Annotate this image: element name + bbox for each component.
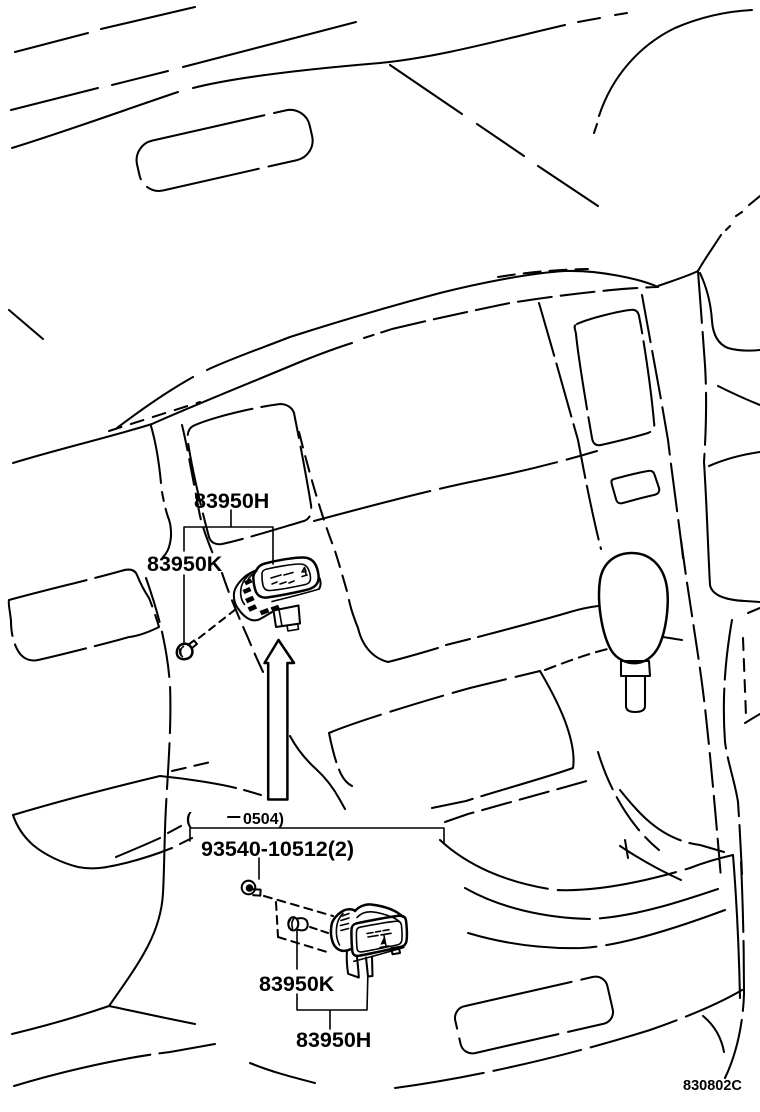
svg-text:93540-10512(2): 93540-10512(2) <box>201 837 354 861</box>
svg-text:83950H: 83950H <box>194 489 269 513</box>
svg-text:(: ( <box>186 809 192 828</box>
svg-text:83950H: 83950H <box>296 1028 371 1052</box>
svg-text:83950K: 83950K <box>147 552 223 576</box>
svg-text:0504): 0504) <box>243 811 284 828</box>
svg-text:83950K: 83950K <box>259 972 335 996</box>
svg-text:830802C: 830802C <box>683 1078 742 1094</box>
